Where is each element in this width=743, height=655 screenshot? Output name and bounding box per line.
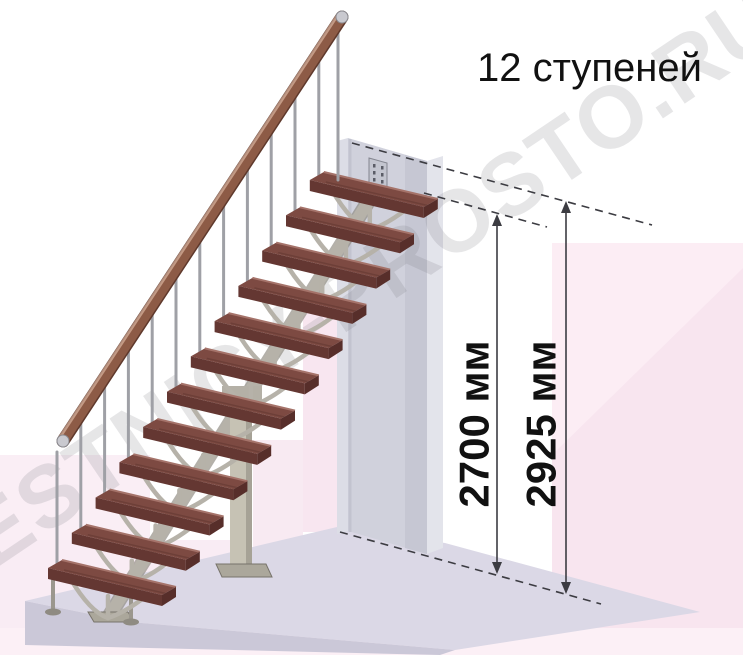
dimension-label-2925: 2925 мм	[518, 340, 565, 507]
leg-foot	[123, 619, 139, 626]
page-title: 12 ступеней	[477, 46, 702, 90]
handrail-end-cap	[57, 435, 69, 447]
handrail-end-cap	[336, 11, 348, 23]
support-base-plate	[216, 564, 272, 577]
diagram-canvas: LESTNICY-PROSTO.RU 2700 мм	[0, 0, 743, 655]
bracket-hole	[373, 164, 376, 168]
bracket-hole	[373, 171, 376, 175]
bracket-hole	[381, 180, 384, 184]
leg-foot	[45, 609, 61, 616]
bracket-hole	[381, 173, 384, 177]
dimension-label-2700: 2700 мм	[451, 340, 498, 507]
bracket-hole	[381, 166, 384, 170]
staircase-diagram: LESTNICY-PROSTO.RU 2700 мм	[0, 0, 743, 655]
bracket-hole	[373, 178, 376, 182]
